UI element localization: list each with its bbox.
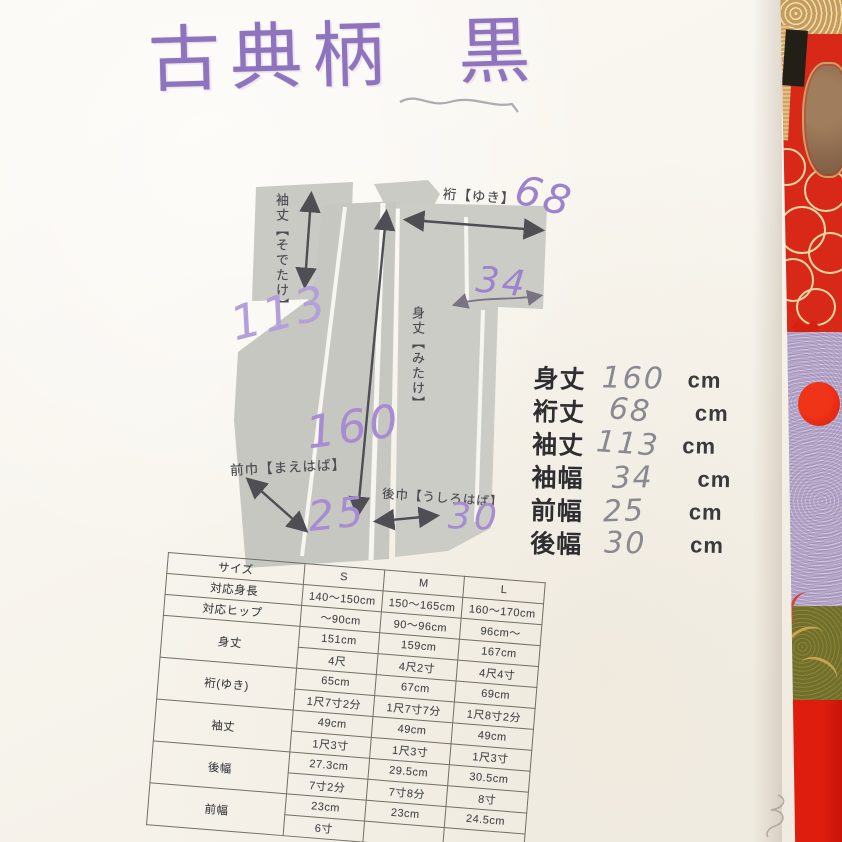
fabric-red-berry	[798, 382, 840, 426]
measurement-value-handwritten: 30	[592, 525, 691, 562]
handwritten-ushirohaba-30: 30	[447, 499, 500, 537]
size-table: サイズ S M L 対応身長 140〜150cm 150〜165cm 160〜1…	[146, 552, 546, 842]
fabric-bronze-leaf	[802, 62, 842, 178]
measurement-value-handwritten: 25	[592, 492, 689, 530]
pencil-underline-squiggle	[394, 82, 524, 118]
handwritten-sodehaba-34: 34	[474, 262, 529, 303]
measurement-label: 袖丈	[532, 424, 595, 461]
measurement-list: 身丈 160 cm 裄丈 68 cm 袖丈 113 cm 袖幅 34 cm 前幅…	[530, 360, 734, 562]
mitake-label: 身丈【みたけ】	[408, 306, 427, 411]
measurement-label: 裄丈	[533, 391, 596, 428]
fabric-petal-outline	[796, 288, 836, 326]
fabric-olive-zone	[776, 606, 842, 708]
measurement-unit: cm	[695, 400, 729, 427]
measurement-label: 身丈	[533, 359, 596, 396]
paper-edge-shadow	[752, 0, 782, 842]
measurement-unit: cm	[687, 367, 721, 394]
photo-kimono-size-sheet: 古典柄 黒 袖丈【そでたけ】 裄【ゆき】 身丈【みたけ】	[0, 0, 842, 842]
measurement-label: 後幅	[530, 523, 593, 560]
kimono-fabric-strip	[776, 0, 842, 842]
fabric-petal-outline	[808, 232, 842, 274]
measurement-unit: cm	[697, 466, 731, 493]
fabric-black-patch	[782, 29, 808, 86]
measurement-unit: cm	[689, 499, 723, 526]
size-table-wrap: サイズ S M L 対応身長 140〜150cm 150〜165cm 160〜1…	[146, 552, 545, 842]
measurement-value-handwritten: 34	[593, 460, 697, 496]
handwritten-mitake-160: 160	[303, 398, 403, 456]
measurement-unit: cm	[690, 532, 724, 559]
fabric-lavender-zone	[776, 332, 842, 614]
measurement-label: 袖幅	[531, 457, 594, 494]
measurement-row-ushirohaba: 後幅 30 cm	[530, 525, 730, 562]
measurement-unit: cm	[682, 433, 716, 460]
handwritten-maehaba-25: 25	[306, 491, 368, 538]
kimono-diagram	[215, 170, 570, 575]
measurement-label: 前幅	[531, 490, 594, 527]
pencil-mark	[756, 792, 794, 838]
